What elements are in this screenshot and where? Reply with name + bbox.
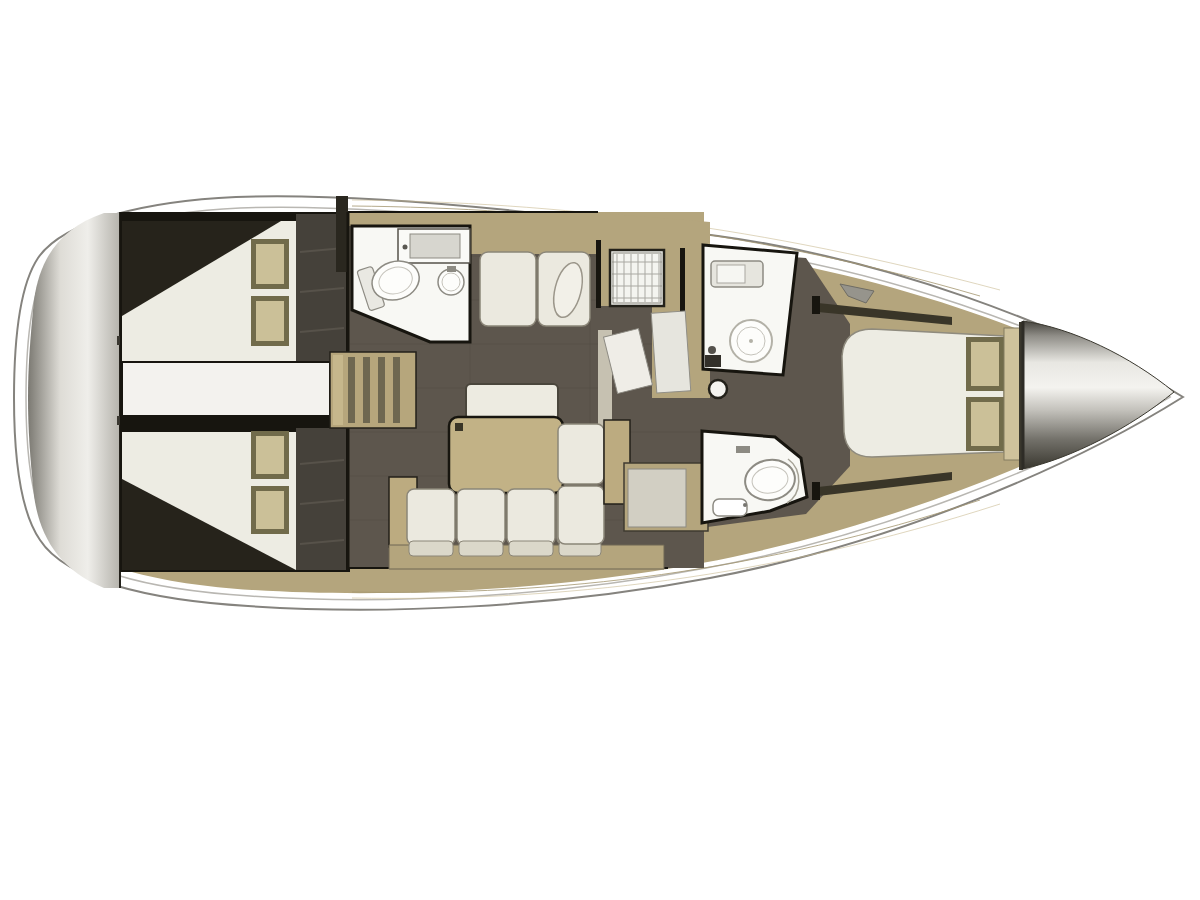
vanity-sink: [717, 265, 745, 283]
anchor-locker-cone: [1023, 321, 1174, 469]
pillow-inner: [256, 436, 284, 474]
floor-plan-stage: [0, 0, 1200, 900]
shower-drain: [749, 339, 753, 343]
dining-table: [449, 417, 563, 493]
back-cushion: [558, 486, 604, 544]
galley-wall: [596, 240, 601, 308]
vanity-sink: [410, 234, 460, 258]
companionway: [330, 352, 416, 428]
bench-seat: [466, 384, 558, 420]
cushion-lip: [459, 541, 503, 556]
saloon-bulkhead: [336, 196, 348, 272]
port-settee: [480, 252, 590, 326]
cabinet-top: [628, 469, 686, 527]
shower-valve: [708, 346, 716, 354]
bow: [1023, 321, 1174, 469]
yacht-floor-plan: [0, 0, 1200, 900]
vanity-knob: [403, 245, 408, 250]
aft-cabin-starboard: [122, 428, 346, 570]
settee-back-deck: [470, 226, 598, 254]
faucet: [447, 266, 456, 272]
engine-compartment: [122, 362, 330, 416]
washbasin: [713, 499, 747, 516]
cabin-wall-post: [812, 482, 820, 500]
seat-cushion: [407, 489, 455, 545]
side-cabinet: [624, 463, 708, 531]
cushion-lip: [409, 541, 453, 556]
mast-post: [709, 380, 727, 398]
faucet: [743, 503, 747, 507]
aft-cabin-port: [122, 214, 346, 366]
ladder-edge: [333, 355, 343, 425]
table-hinge: [455, 423, 463, 431]
pillow-inner: [971, 342, 999, 386]
cushion-lip: [509, 541, 553, 556]
headboard: [1004, 328, 1020, 460]
seat-cushion: [507, 489, 555, 545]
fitting: [736, 446, 750, 453]
pillow-inner: [256, 244, 284, 284]
shower-fitting: [705, 355, 721, 367]
back-cushion: [558, 424, 604, 484]
counter-sink: [651, 311, 690, 393]
pillow-inner: [971, 402, 999, 446]
pillow-inner: [256, 491, 284, 529]
seat-cushion: [457, 489, 505, 545]
wardrobe-locker: [296, 428, 346, 570]
cabin-wall-post: [812, 296, 820, 314]
pillow-inner: [256, 301, 284, 341]
head-forward-port: [703, 245, 797, 375]
settee-cushion: [480, 252, 536, 326]
